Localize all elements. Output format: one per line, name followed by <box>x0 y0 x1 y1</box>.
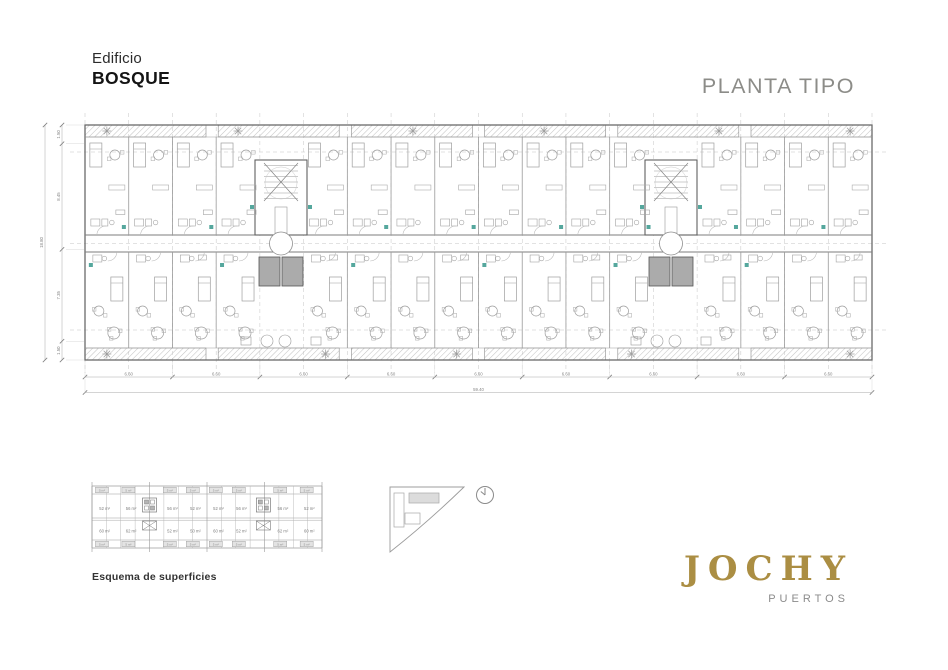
kitchen <box>466 210 475 215</box>
corridor-circle <box>660 232 683 255</box>
balcony-area-label: 5 m² <box>277 543 283 547</box>
chair <box>776 151 780 155</box>
chair <box>732 151 736 155</box>
door-arc <box>764 252 773 261</box>
area-label-lower: 60 m² <box>213 529 224 534</box>
door-arc <box>720 252 729 261</box>
wc <box>241 220 246 225</box>
chair <box>470 151 474 155</box>
chair <box>426 151 430 155</box>
area-label-lower: 52 m² <box>236 529 247 534</box>
chair <box>497 314 501 318</box>
wc <box>539 256 544 261</box>
shaft-marker <box>640 205 644 209</box>
bath <box>528 219 537 226</box>
wc <box>853 220 858 225</box>
chair <box>235 314 239 318</box>
unit-furniture <box>571 143 606 340</box>
site-block-filled <box>409 493 439 503</box>
door-arc <box>578 226 587 235</box>
dining-table <box>545 327 557 339</box>
wc <box>496 256 501 261</box>
bed <box>789 143 801 167</box>
area-label-upper: 52 m² <box>99 506 110 511</box>
wc <box>809 220 814 225</box>
bath <box>758 219 764 226</box>
wc <box>714 256 719 261</box>
chair <box>514 151 518 155</box>
dim-bottom-label: 6.60 <box>562 371 571 376</box>
chair <box>409 314 413 318</box>
unit-furniture <box>220 127 256 341</box>
bath <box>397 219 406 226</box>
wc <box>372 220 377 225</box>
bath <box>583 219 589 226</box>
sheet-title: PLANTA TIPO <box>702 74 855 99</box>
balcony-area-label: 5 m² <box>236 489 242 493</box>
kitchen <box>334 210 343 215</box>
bath <box>749 255 758 262</box>
unit-furniture <box>134 143 169 340</box>
table <box>635 150 645 160</box>
bath <box>703 219 712 226</box>
wardrobe <box>459 185 475 190</box>
bath <box>135 219 144 226</box>
kitchen <box>597 210 606 215</box>
bed <box>242 277 254 301</box>
wardrobe <box>153 185 169 190</box>
kitchen <box>509 210 518 215</box>
area-label-lower: 62 m² <box>126 529 137 534</box>
bath <box>355 255 364 262</box>
bed <box>417 277 429 301</box>
chair <box>322 314 326 318</box>
dining-table <box>807 327 819 339</box>
door-arc <box>403 226 412 235</box>
wc <box>321 256 326 261</box>
shaft-marker <box>89 263 93 267</box>
shaft-marker <box>482 263 486 267</box>
area-label-lower: 52 m² <box>167 529 178 534</box>
balcony-area-label: 5 m² <box>213 489 219 493</box>
dim-total-label: 59.40 <box>473 387 484 392</box>
bed <box>833 143 845 167</box>
door-arc <box>796 226 805 235</box>
unit-furniture <box>482 143 518 340</box>
door-arc <box>326 252 335 261</box>
wardrobe <box>590 185 606 190</box>
plan-rect <box>151 506 155 510</box>
door-arc <box>239 252 248 261</box>
kitchen <box>116 210 125 215</box>
door-arc <box>370 252 379 261</box>
clock-hand <box>481 492 485 496</box>
dim-bottom-label: 6.60 <box>387 371 396 376</box>
shaft-marker <box>220 263 224 267</box>
plan-circle <box>669 335 681 347</box>
balcony-area-label: 5 m² <box>190 489 196 493</box>
bed <box>592 277 604 301</box>
bed <box>90 143 102 167</box>
dining-table <box>589 327 601 339</box>
plan-rect <box>145 506 149 510</box>
bath <box>539 219 545 226</box>
kitchen <box>859 210 868 215</box>
shaft-marker <box>209 225 213 229</box>
logo-brand: JOCHY <box>684 552 853 588</box>
door-arc <box>633 252 642 261</box>
wc <box>102 256 107 261</box>
bath <box>399 255 408 262</box>
bath <box>572 219 581 226</box>
plan-rect <box>264 500 268 504</box>
building-title-block: Edificio BOSQUE <box>92 50 170 89</box>
logo: JOCHY PUERTOS <box>684 552 845 605</box>
plan-rect <box>701 337 711 345</box>
table <box>503 150 513 160</box>
dining-table <box>720 327 732 339</box>
bed <box>702 143 714 167</box>
unit-furniture <box>351 143 388 340</box>
wardrobe <box>196 185 212 190</box>
balcony-area-label: 5 m² <box>125 489 131 493</box>
balcony-area-label: 5 m² <box>167 489 173 493</box>
chair <box>628 314 632 318</box>
stair-core-1 <box>241 160 321 347</box>
door-arc <box>447 226 456 235</box>
area-label-upper: 56 m² <box>167 506 178 511</box>
balcony-area-label: 5 m² <box>99 543 105 547</box>
area-label-lower: 60 m² <box>99 529 110 534</box>
dim-bottom-label: 6.60 <box>125 371 134 376</box>
dining-table <box>501 327 513 339</box>
bath <box>443 255 452 262</box>
chair <box>147 314 151 318</box>
wardrobe <box>721 185 737 190</box>
wc <box>802 256 807 261</box>
building-label: Edificio <box>92 50 170 67</box>
bath <box>222 219 231 226</box>
shaft-marker <box>384 225 388 229</box>
wardrobe <box>415 185 431 190</box>
balcony-area-label: 5 m² <box>99 489 105 493</box>
table <box>460 150 470 160</box>
bed <box>527 143 539 167</box>
dim-bottom-label: 6.60 <box>299 371 308 376</box>
bath <box>627 219 633 226</box>
table <box>372 150 382 160</box>
bath <box>137 255 146 262</box>
floor-plan-drawing: 6.606.606.606.606.606.606.606.606.6059.4… <box>30 105 910 405</box>
shaft-marker <box>122 225 126 229</box>
kitchen <box>728 210 737 215</box>
table <box>591 150 601 160</box>
chair <box>601 151 605 155</box>
chair <box>191 314 195 318</box>
wc <box>758 256 763 261</box>
table <box>722 150 732 160</box>
dining-table <box>370 327 382 339</box>
table <box>809 150 819 160</box>
door-arc <box>589 252 598 261</box>
bath <box>364 219 370 226</box>
scheme-caption: Esquema de superficies <box>92 571 217 583</box>
wc <box>845 256 850 261</box>
bath <box>311 255 320 262</box>
wc <box>547 220 552 225</box>
balcony-hatch-bottom <box>485 348 606 360</box>
table <box>110 150 120 160</box>
wc <box>459 220 464 225</box>
unit-furniture <box>833 127 868 359</box>
door-arc <box>545 252 554 261</box>
wc <box>233 256 238 261</box>
balcony-area-label: 5 m² <box>236 543 242 547</box>
bed <box>111 277 123 301</box>
balcony-area-label: 5 m² <box>125 543 131 547</box>
door-arc <box>414 252 423 261</box>
wc <box>591 220 596 225</box>
wc <box>328 220 333 225</box>
wardrobe <box>109 185 125 190</box>
bed <box>483 143 495 167</box>
chair <box>120 151 124 155</box>
bath <box>309 219 318 226</box>
plan-circle <box>261 335 273 347</box>
bath <box>486 255 495 262</box>
shaft-marker <box>250 205 254 209</box>
door-arc <box>97 226 106 235</box>
chair <box>847 314 851 318</box>
bath <box>452 219 458 226</box>
drawing-sheet: Edificio BOSQUE PLANTA TIPO 6.606.606.60… <box>0 0 948 670</box>
bath <box>189 219 195 226</box>
chair <box>715 314 719 318</box>
bed <box>440 143 452 167</box>
bed <box>504 277 516 301</box>
area-label-lower: 50 m² <box>190 529 201 534</box>
unit-furniture <box>789 143 825 340</box>
bed <box>308 143 320 167</box>
wc <box>110 220 115 225</box>
area-label-upper: 52 m² <box>190 506 201 511</box>
wardrobe <box>852 185 868 190</box>
chair <box>252 151 256 155</box>
elevator <box>649 257 670 286</box>
bed <box>352 143 364 167</box>
door-arc <box>840 226 849 235</box>
bed <box>615 143 627 167</box>
chair <box>645 151 649 155</box>
site-block <box>394 493 404 527</box>
shaft-marker <box>559 225 563 229</box>
shaft-marker <box>351 263 355 267</box>
dim-bottom-label: 6.60 <box>474 371 483 376</box>
bath <box>836 255 845 262</box>
chair <box>164 151 168 155</box>
wardrobe <box>327 185 343 190</box>
chair <box>208 151 212 155</box>
area-label-lower: 62 m² <box>278 529 289 534</box>
table <box>766 150 776 160</box>
table <box>154 150 164 160</box>
dim-bottom-label: 6.60 <box>824 371 833 376</box>
kitchen <box>378 210 387 215</box>
unit-furniture <box>745 143 781 340</box>
wc <box>722 220 727 225</box>
bath <box>530 255 539 262</box>
dim-bottom-label: 6.60 <box>212 371 221 376</box>
bath <box>353 219 362 226</box>
table <box>328 150 338 160</box>
door-arc <box>851 252 860 261</box>
bed <box>548 277 560 301</box>
bath <box>233 219 239 226</box>
plan-rect <box>311 337 321 345</box>
chair <box>864 151 868 155</box>
table <box>547 150 557 160</box>
stair-core-2 <box>631 160 711 347</box>
dining-table <box>108 327 120 339</box>
door-arc <box>458 252 467 261</box>
door-arc <box>534 226 543 235</box>
bath <box>792 255 801 262</box>
bath <box>574 255 583 262</box>
wardrobe <box>502 185 518 190</box>
bath <box>801 219 807 226</box>
door-arc <box>108 252 117 261</box>
area-label-upper: 56 m² <box>126 506 137 511</box>
bed <box>221 143 233 167</box>
bath <box>714 219 720 226</box>
bed <box>396 143 408 167</box>
door-arc <box>141 226 150 235</box>
area-label-upper: 56 m² <box>278 506 289 511</box>
unit-furniture <box>177 143 213 340</box>
corridor-circle <box>270 232 293 255</box>
dining-table <box>458 327 470 339</box>
wc <box>452 256 457 261</box>
shaft-marker <box>614 263 618 267</box>
plan-circle <box>279 335 291 347</box>
bath <box>178 219 187 226</box>
bed <box>373 277 385 301</box>
dining-table <box>195 327 207 339</box>
shaft-marker <box>472 225 476 229</box>
kitchen <box>203 210 212 215</box>
bath <box>102 219 108 226</box>
unit-furniture <box>527 127 563 341</box>
bath <box>320 219 326 226</box>
bath <box>146 219 152 226</box>
bath <box>834 219 843 226</box>
bed <box>177 143 189 167</box>
bath <box>408 219 414 226</box>
bath <box>441 219 450 226</box>
chair <box>103 314 107 318</box>
door-arc <box>709 226 718 235</box>
plan-rect <box>151 500 155 504</box>
dining-table <box>326 327 338 339</box>
bed <box>329 277 341 301</box>
door-arc <box>622 226 631 235</box>
balcony-area-label: 5 m² <box>277 489 283 493</box>
shaft-marker <box>308 205 312 209</box>
bed <box>854 277 866 301</box>
table <box>241 150 251 160</box>
balcony-area-label: 5 m² <box>304 489 310 493</box>
building-name: BOSQUE <box>92 68 170 89</box>
bath <box>618 255 627 262</box>
shaft-marker <box>734 225 738 229</box>
bed <box>810 277 822 301</box>
bath <box>180 255 189 262</box>
wardrobe <box>765 185 781 190</box>
wc <box>416 220 421 225</box>
area-label-upper: 52 m² <box>304 506 315 511</box>
bath <box>91 219 100 226</box>
wc <box>503 220 508 225</box>
balcony-area-label: 5 m² <box>167 543 173 547</box>
bath <box>484 219 493 226</box>
door-arc <box>359 226 368 235</box>
dim-left-label: 8.45 <box>56 192 61 201</box>
chair <box>383 151 387 155</box>
area-label-lower: 60 m² <box>304 529 315 534</box>
bed <box>571 143 583 167</box>
dim-bottom-label: 6.60 <box>737 371 746 376</box>
unit-furniture <box>89 127 126 359</box>
dining-table <box>152 327 164 339</box>
elevator <box>672 257 693 286</box>
dim-left-label: 1.50 <box>56 346 61 355</box>
door-arc <box>195 252 204 261</box>
dining-table <box>414 327 426 339</box>
chair <box>339 151 343 155</box>
wc <box>153 220 158 225</box>
door-arc <box>807 252 816 261</box>
bed <box>134 143 146 167</box>
chair <box>558 151 562 155</box>
dim-left-label: 7.35 <box>56 291 61 300</box>
shaft-marker <box>647 225 651 229</box>
wardrobe <box>808 185 824 190</box>
plan-rect <box>264 506 268 510</box>
table <box>197 150 207 160</box>
wc <box>627 256 632 261</box>
logo-subtitle: PUERTOS <box>684 593 849 605</box>
unit-furniture <box>440 143 476 359</box>
bed <box>723 277 735 301</box>
bed <box>767 277 779 301</box>
bed <box>746 143 758 167</box>
bed <box>461 277 473 301</box>
table <box>416 150 426 160</box>
chair <box>820 151 824 155</box>
chair <box>759 314 763 318</box>
plan-rect <box>145 500 149 504</box>
dining-table <box>764 327 776 339</box>
bath <box>616 219 625 226</box>
bath <box>747 219 756 226</box>
wc <box>634 220 639 225</box>
wc <box>583 256 588 261</box>
elevator <box>282 257 303 286</box>
balcony-area-label: 5 m² <box>213 543 219 547</box>
shaft-marker <box>698 205 702 209</box>
area-label-upper: 52 m² <box>213 506 224 511</box>
chair <box>584 314 588 318</box>
